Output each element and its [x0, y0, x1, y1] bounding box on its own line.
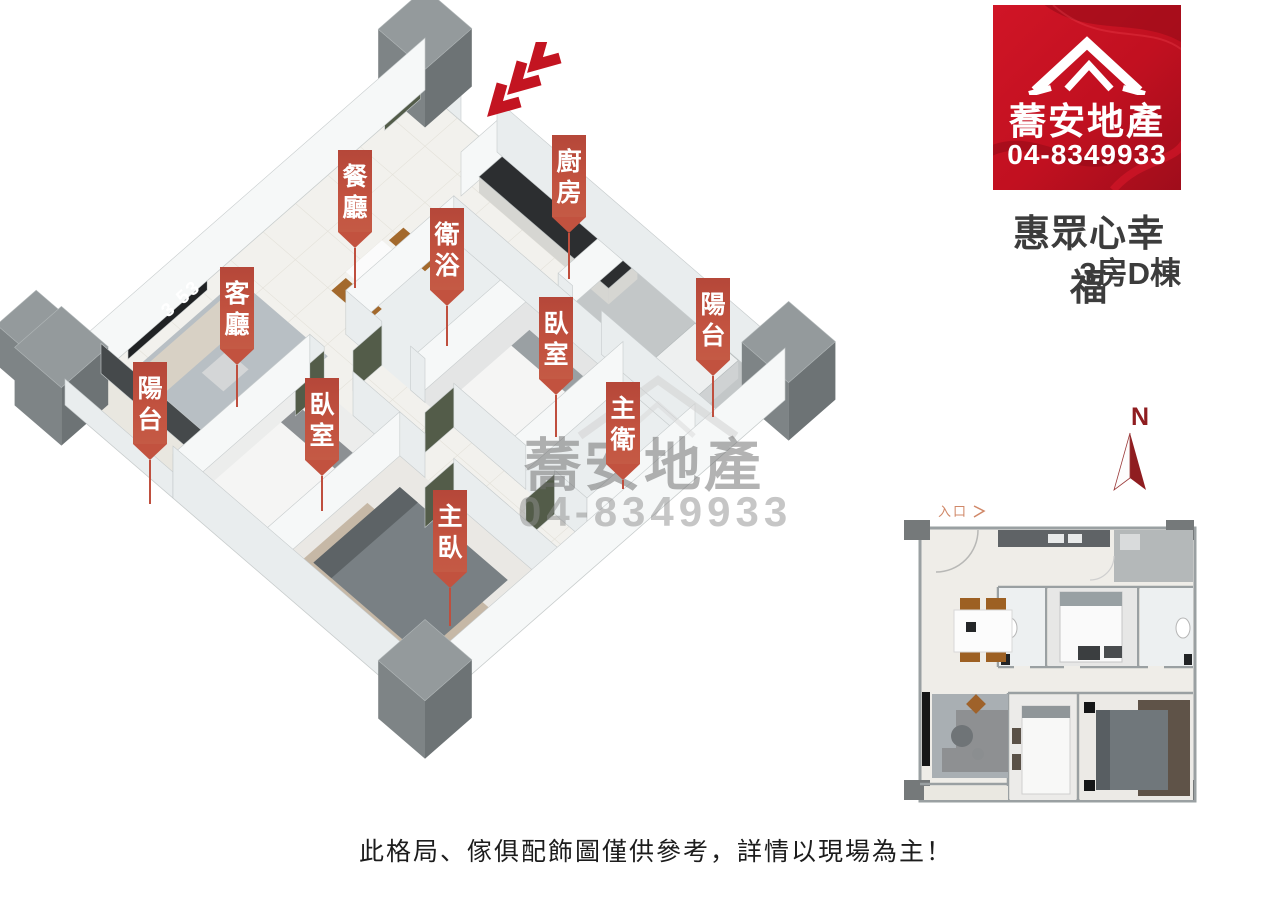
north-needle-icon — [1108, 430, 1152, 496]
brand-phone: 04-8349933 — [993, 139, 1181, 171]
brand-name: 蕎安地產 — [993, 91, 1181, 145]
disclaimer-text: 此格局、傢俱配飾圖僅供參考，詳情以現場為主！ — [40, 832, 1272, 868]
room-label-master-bath: 主衛 — [606, 382, 640, 480]
room-label-bedroom-top: 臥室 — [539, 297, 573, 395]
entrance-label: 入口 — [938, 504, 968, 519]
house-roof-icon — [1027, 33, 1147, 95]
room-label-bedroom-left: 臥室 — [305, 378, 339, 476]
north-label: N — [1108, 404, 1172, 430]
north-compass: N — [1108, 404, 1172, 496]
entrance-arrows-icon — [468, 42, 578, 134]
room-label-bathroom: 衛浴 — [430, 208, 464, 306]
listing-subtitle: 3房D棟 — [995, 248, 1181, 293]
room-label-balcony-left: 陽台 — [133, 362, 167, 460]
brand-logo-card: 蕎安地產 04-8349933 — [993, 5, 1181, 190]
room-label-dining: 餐廳 — [338, 150, 372, 248]
floorplan-2d: 入口 — [898, 496, 1200, 810]
flyer-canvas: 3 53 蕎安地產 04-8349933 餐廳廚房衛浴客廳陽台臥室陽台臥室主衛主… — [0, 0, 1272, 900]
room-label-master-bedroom: 主臥 — [433, 490, 467, 588]
room-label-balcony-right: 陽台 — [696, 278, 730, 376]
room-label-kitchen: 廚房 — [552, 135, 586, 233]
room-label-living: 客廳 — [220, 267, 254, 365]
